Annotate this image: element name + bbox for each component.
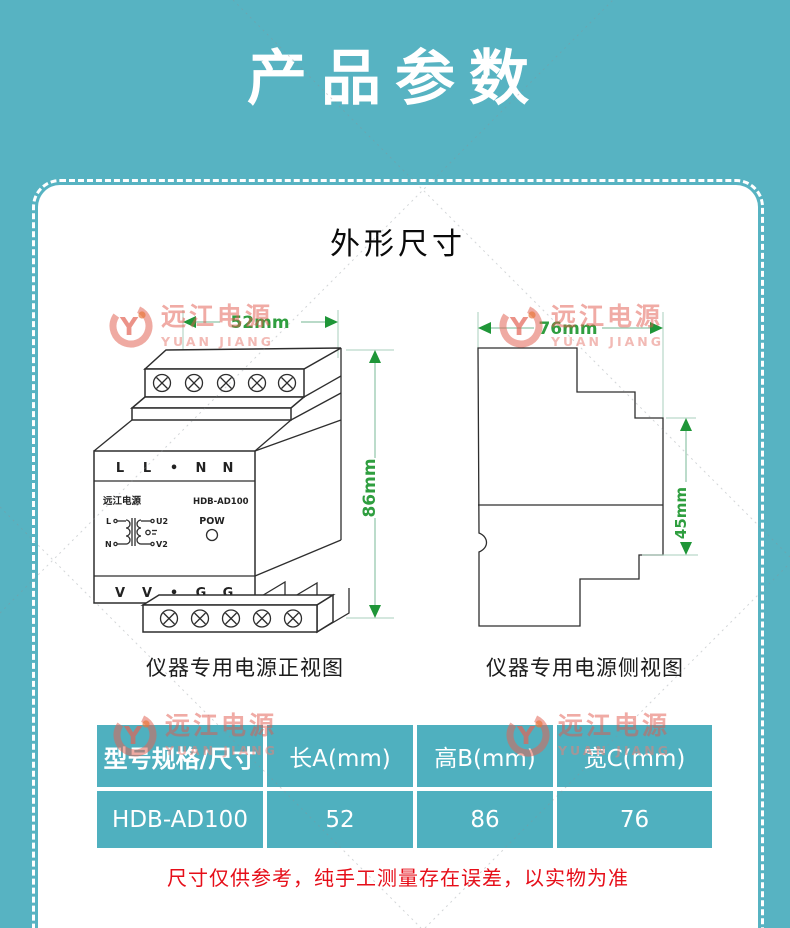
front-height-dim: 86mm [360,458,380,517]
side-height-dim: 45mm [672,487,690,539]
side-width-dim: 76mm [538,319,597,339]
spec-table: 型号规格/尺寸 长A(mm) 高B(mm) 宽C(mm) HDB-AD100 5… [97,725,712,848]
front-width-dim: 52mm [230,313,289,333]
table-cell-width: 76 [557,791,712,848]
svg-text:V: V [115,586,125,601]
faceplate-brand: 远江电源 [103,495,142,507]
page: 产品参数 外形尺寸 52mm [0,0,790,928]
side-view-drawing: 76mm 45mm [458,300,708,692]
side-view-caption: 仪器专用电源侧视图 [460,652,710,682]
svg-text:L: L [143,461,151,476]
section-title: 外形尺寸 [38,219,758,263]
table-header-height: 高B(mm) [417,725,553,787]
table-header-length: 长A(mm) [267,725,413,787]
table-header-model: 型号规格/尺寸 [97,725,263,787]
table-cell-model: HDB-AD100 [97,791,263,848]
svg-text:N: N [196,461,207,476]
svg-text:N: N [223,461,234,476]
faceplate-model: HDB-AD100 [193,497,249,507]
table-cell-length: 52 [267,791,413,848]
svg-text:•: • [170,461,178,476]
page-title: 产品参数 [0,30,790,117]
svg-text:N: N [105,540,112,549]
svg-text:L: L [106,517,111,526]
table-cell-height: 86 [417,791,553,848]
table-header-width: 宽C(mm) [557,725,712,787]
disclaimer-note: 尺寸仅供参考，纯手工测量存在误差，以实物为准 [38,862,758,891]
content-card: 外形尺寸 52mm [38,185,758,928]
front-view-drawing: 52mm [88,300,400,692]
svg-text:V2: V2 [156,540,168,549]
pow-label: POW [199,516,225,527]
svg-text:U2: U2 [156,517,168,526]
svg-text:V: V [142,586,152,601]
svg-text:L: L [116,461,124,476]
front-view-caption: 仪器专用电源正视图 [95,652,395,682]
